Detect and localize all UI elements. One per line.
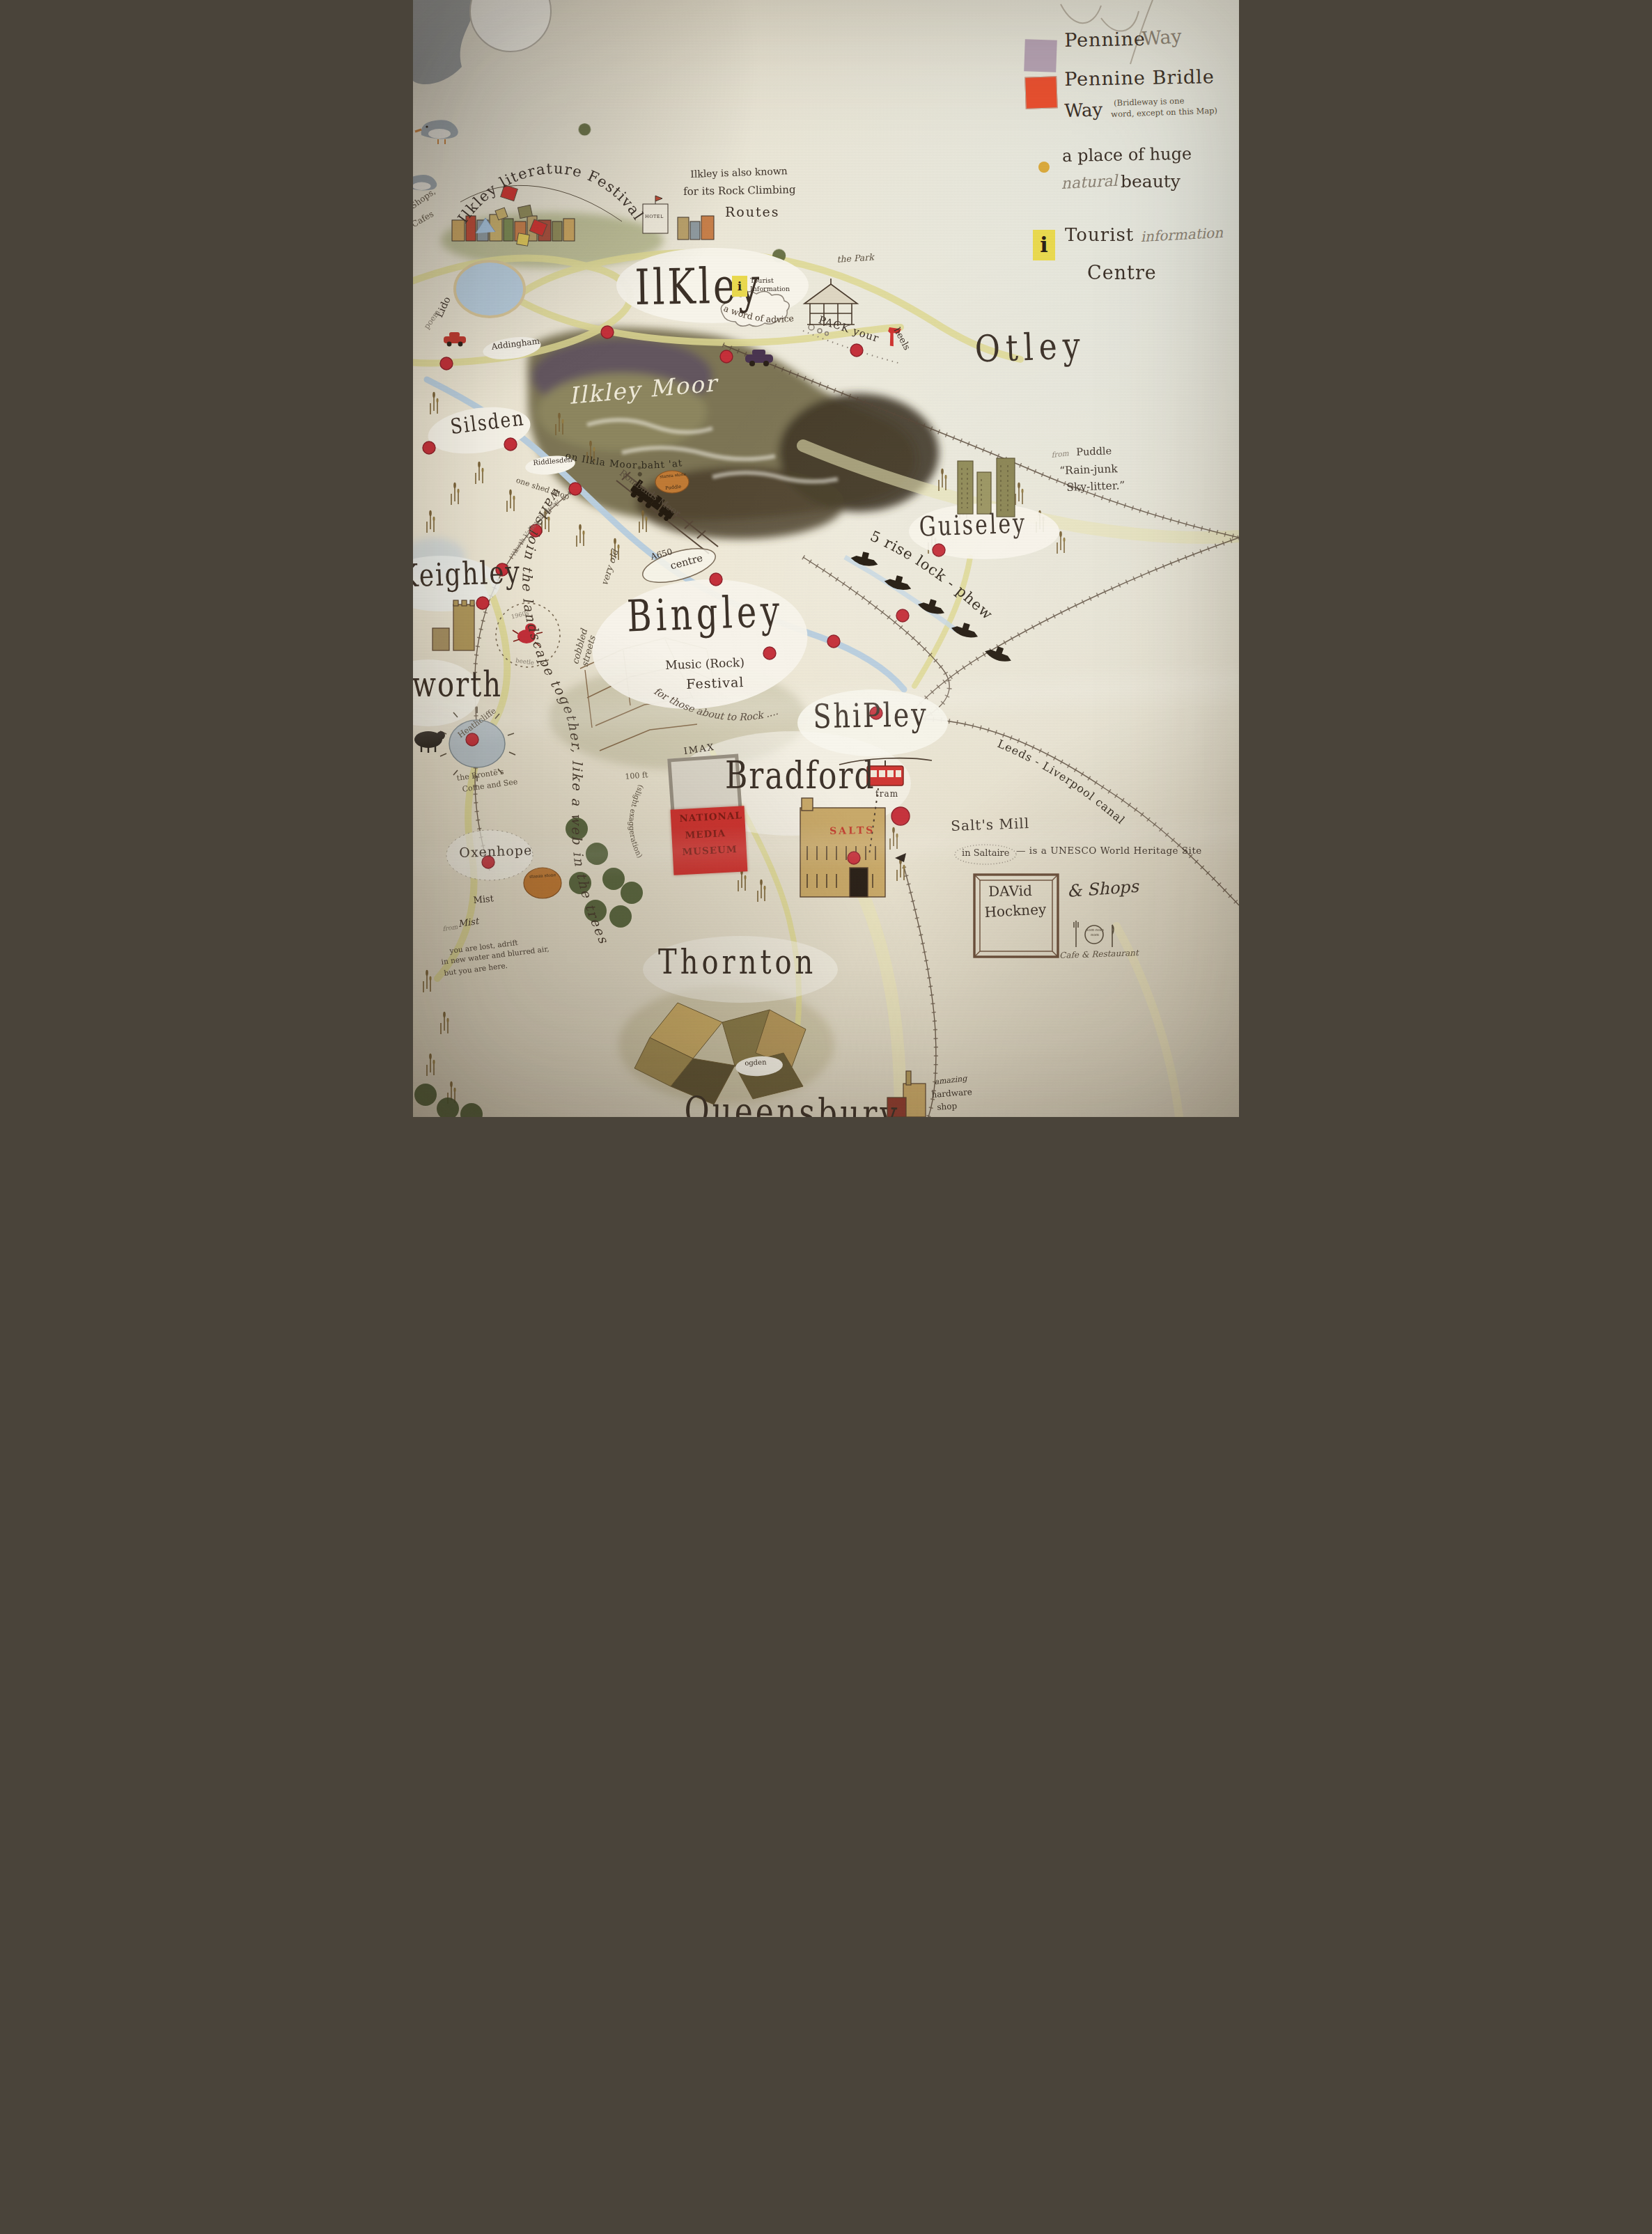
legend-bridleway-note-1: (Bridleway is one [1114,96,1185,107]
illustrated-map-photo: Ilkley literature Festival walls join th… [413,0,1239,1117]
legend-label-centre: Centre [1087,263,1157,283]
legend-label-beauty: beauty [1121,173,1180,192]
town-label-bingley: Bingley [626,588,784,639]
puddle-quote-source: Puddle [1076,446,1112,458]
hardware-line3: shop [937,1102,958,1112]
puddle-quote-line1: “Rain-junk [1059,463,1118,476]
ilkley-tourist-info-icon: i [732,276,747,297]
hockney-line1: DAVid [988,884,1032,899]
rock-climbing-line3: Routes [725,205,780,219]
hundred-ft-label: 100 ft [625,771,648,781]
legend-dot-natural-beauty [1038,162,1050,173]
legend-label-pennine-bridle: Pennine Bridle [1064,67,1215,89]
town-label-otley: Otley [974,326,1086,368]
hotel-label: HOTEL [645,214,664,219]
legend-label-pennine: Pennine [1064,29,1146,51]
rock-climbing-line2: for its Rock Climbing [683,185,796,198]
legend-swatch-bridle-way [1024,76,1058,109]
town-label-queensbury: Queensbury [684,1091,901,1117]
hockney-line2: Hockney [984,902,1047,920]
town-label-thornton: Thornton [658,944,816,980]
legend-swatch-pennine-way [1024,39,1057,72]
legend-label-way2: Way [1064,100,1103,120]
town-label-keighley: Keighley [413,556,522,593]
legend-tourist-info-icon: i [1033,230,1055,260]
nom-nom-label: nom nom nom [1086,928,1104,937]
puddle-quote-line2: Sky-litter.” [1066,480,1125,493]
town-label-ogden: ogden [745,1059,767,1067]
gull-bird [415,120,458,144]
red-car [444,332,466,346]
bingley-music-label: Music (Rock) [665,656,745,671]
corner-shapes [413,0,551,84]
legend-label-way-pencil: Way [1141,26,1183,49]
mist-label: Mist [473,893,494,905]
tourist-info-line1: Tourist [750,277,774,284]
lido-lake [455,261,524,317]
tram-label: tram [875,790,898,799]
town-label-guiseley: Guiseley [919,509,1027,542]
legend-label-natural: natural [1061,173,1118,192]
legend-label-tourist: Tourist [1065,226,1134,245]
town-label-bradford: Bradford [725,755,875,795]
tourist-info-line2: Information [750,286,790,292]
the-park-label: the Park [836,252,874,264]
legend-label-place-of-huge: a place of huge [1062,146,1192,166]
